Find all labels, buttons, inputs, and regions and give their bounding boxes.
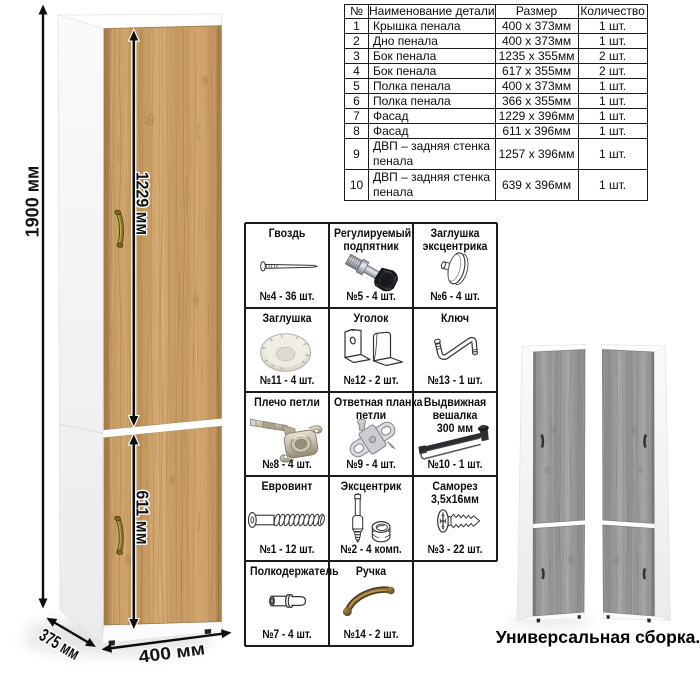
svg-text:611 мм: 611 мм (132, 490, 152, 544)
svg-text:1229 мм: 1229 мм (132, 172, 152, 235)
svg-text:1900 мм: 1900 мм (22, 166, 42, 238)
